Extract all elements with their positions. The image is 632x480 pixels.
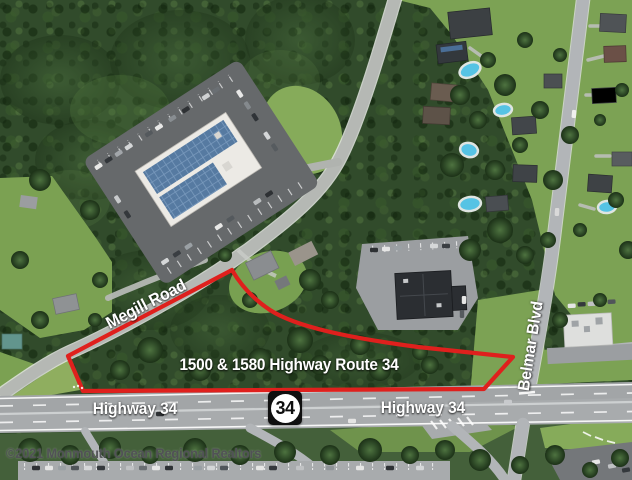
shed — [19, 195, 38, 209]
copyright-watermark: ©2021 Monmouth Ocean Regional Realtors — [6, 446, 261, 461]
aerial-map: Megill Road 1500 & 1580 Highway Route 34… — [0, 0, 632, 480]
shield-number: 34 — [275, 397, 294, 419]
road-label-highway34-right: Highway 34 — [381, 400, 465, 417]
route-34-shield: 34 — [268, 391, 302, 425]
teal-roof-building — [2, 334, 22, 349]
property-address-label: 1500 & 1580 Highway Route 34 — [179, 357, 398, 374]
shield-circle: 34 — [271, 394, 300, 423]
road-label-highway34-left: Highway 34 — [93, 401, 177, 418]
